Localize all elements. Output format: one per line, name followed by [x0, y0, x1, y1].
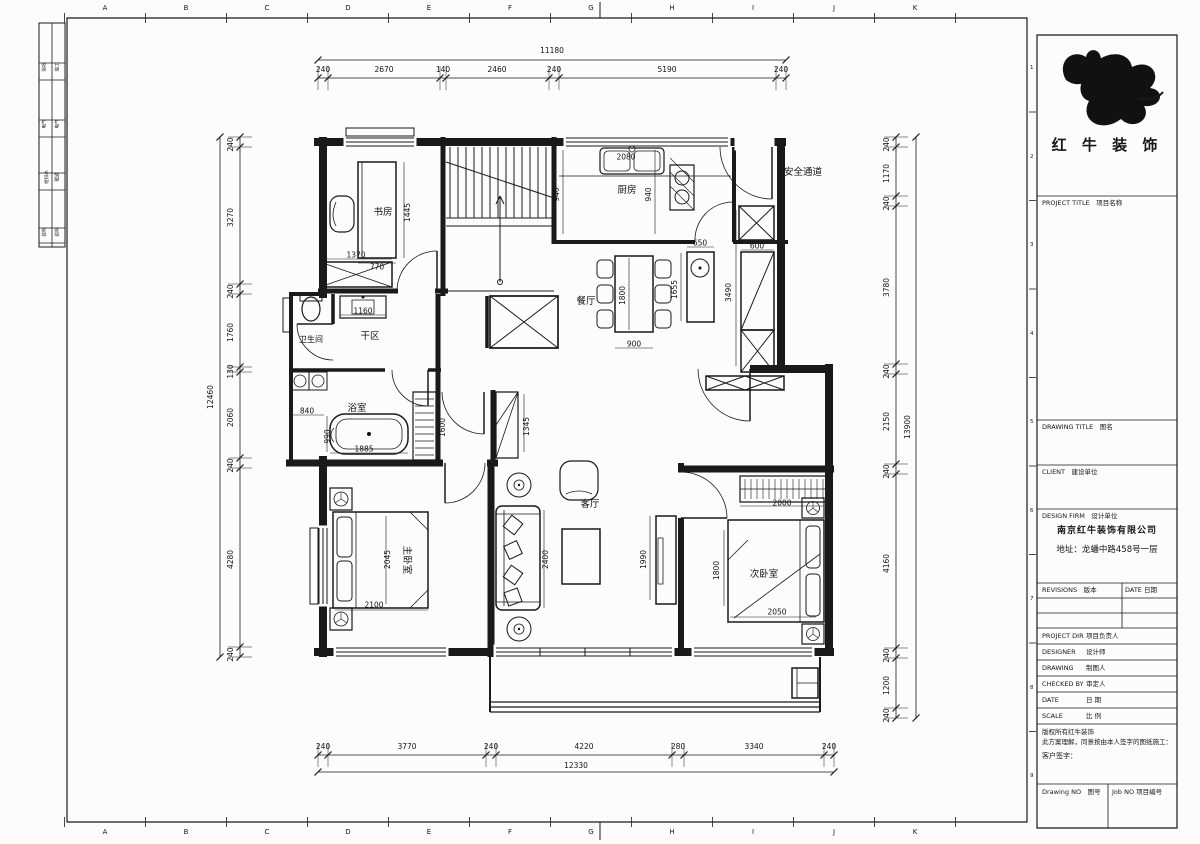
- dim-label: 4160: [882, 554, 891, 573]
- dim-label: 1760: [226, 323, 235, 342]
- grid-letter: I: [743, 828, 763, 836]
- dim-label: 1160: [353, 307, 372, 316]
- fold-strip-label: 结构: [42, 228, 48, 237]
- dim-label: 2060: [226, 408, 235, 427]
- tb-row-en: SCALE: [1042, 713, 1063, 720]
- dim-label: 240: [822, 742, 837, 751]
- dim-total-label: 11180: [540, 46, 564, 55]
- dim-label: 240: [547, 65, 562, 74]
- grid-letter: A: [95, 828, 115, 836]
- grid-letter: B: [176, 4, 196, 12]
- dim-total-label: 13900: [903, 415, 912, 439]
- dim-label: 2150: [882, 412, 891, 431]
- tb-row-zh: 比 例: [1086, 713, 1101, 720]
- dim-label: 4280: [226, 550, 235, 569]
- job-no-label: Job NO 项目编号: [1112, 789, 1162, 796]
- bath-fixtures: [291, 294, 436, 460]
- brand-name: 红 牛 装 饰: [1045, 138, 1169, 153]
- grid-letter: A: [95, 4, 115, 12]
- dim-label: 2100: [364, 601, 383, 610]
- dim-label: 240: [882, 464, 891, 479]
- tb-row-zh: 项目负责人: [1086, 633, 1119, 640]
- dim-label: 2045: [383, 550, 392, 569]
- dim-total-label: 12460: [206, 385, 215, 409]
- dim-label: 1170: [882, 164, 891, 183]
- balcony: [490, 657, 820, 712]
- dim-label: 240: [882, 648, 891, 663]
- grid-letter: B: [176, 828, 196, 836]
- dim-label: 4220: [574, 742, 593, 751]
- grid-letter: F: [500, 828, 520, 836]
- dim-label: 1600: [438, 418, 447, 437]
- project-title-label: PROJECT TITLE 项目名称: [1042, 200, 1122, 207]
- grid-letter: H: [662, 4, 682, 12]
- dim-label: 240: [226, 647, 235, 662]
- dim-label: 280: [671, 742, 686, 751]
- client-label: CLIENT 建设单位: [1042, 469, 1098, 476]
- floor-plan: [283, 128, 834, 712]
- room-label: 主卧室: [401, 546, 413, 575]
- dim-label: 3340: [744, 742, 763, 751]
- grid-number: 9: [1030, 773, 1034, 779]
- dim-label: 1370: [346, 251, 365, 260]
- dim-label: 940: [552, 187, 561, 202]
- grid-number: 7: [1030, 596, 1034, 602]
- date-header-label: DATE 日期: [1125, 587, 1157, 594]
- dim-label: 240: [316, 65, 331, 74]
- dim-label: 240: [882, 364, 891, 379]
- dim-label: 240: [774, 65, 789, 74]
- tb-row-zh: 制图人: [1086, 665, 1106, 672]
- dim-label: 940: [644, 187, 653, 202]
- dim-label: 1655: [670, 280, 679, 299]
- room-label: 次卧室: [750, 568, 779, 580]
- drawing-sheet: { "frame": { "top_letters": ["A","B","C"…: [0, 0, 1200, 844]
- grid-letter: D: [338, 828, 358, 836]
- fold-strip-label: 暖通: [55, 173, 61, 182]
- dim-label: 240: [226, 137, 235, 152]
- grid-letter: J: [824, 828, 844, 836]
- grid-letter: H: [662, 828, 682, 836]
- fold-strip-label: 验收: [42, 63, 48, 72]
- tb-row-zh: 审定人: [1086, 681, 1106, 688]
- room-label: 安全通道: [784, 166, 823, 178]
- fold-strip-label: 结构: [55, 228, 61, 237]
- drawing-title-label: DRAWING TITLE 图名: [1042, 424, 1113, 431]
- rednbull-logo: [1063, 50, 1163, 125]
- copyright-line1: 版权所有红牛装饰: [1042, 729, 1094, 736]
- room-label: 浴室: [347, 402, 366, 414]
- floor-plan-svg: 2402670140246024051902401118024037702404…: [0, 0, 1200, 844]
- company-name: 南京红牛装饰有限公司: [1040, 527, 1174, 536]
- grid-letter: E: [419, 4, 439, 12]
- grid-letter: G: [581, 828, 601, 836]
- dim-label: 2400: [541, 550, 550, 569]
- room-label: 客厅: [580, 498, 600, 510]
- grid-number: 4: [1030, 331, 1034, 337]
- design-firm-label: DESIGN FIRM 设计单位: [1042, 513, 1117, 520]
- dim-label: 240: [882, 196, 891, 211]
- grid-letter: K: [905, 4, 925, 12]
- dim-label: 2050: [767, 608, 786, 617]
- company-address: 地址：龙蟠中路458号一层: [1040, 546, 1174, 555]
- room-label: 书房: [373, 206, 392, 218]
- grid-letter: D: [338, 4, 358, 12]
- tb-row-en: CHECKED BY: [1042, 681, 1084, 688]
- dim-label: 2670: [374, 65, 393, 74]
- tb-row-en: DESIGNER: [1042, 649, 1076, 656]
- grid-number: 1: [1030, 65, 1034, 71]
- dim-label: 240: [226, 458, 235, 473]
- dim-label: 240: [484, 742, 499, 751]
- dim-label: 5190: [657, 65, 676, 74]
- grid-letter: G: [581, 4, 601, 12]
- dim-label: 2080: [616, 153, 635, 162]
- tb-row-en: PROJECT DIR: [1042, 633, 1084, 640]
- tb-row-zh: 日 期: [1086, 697, 1101, 704]
- grid-number: 5: [1030, 419, 1034, 425]
- dim-label: 240: [316, 742, 331, 751]
- tb-row-en: DATE: [1042, 697, 1059, 704]
- dim-label: 1445: [403, 203, 412, 222]
- dim-label: 600: [750, 242, 765, 251]
- study-furniture: [320, 162, 396, 287]
- grid-letter: E: [419, 828, 439, 836]
- room-label: 干区: [360, 331, 380, 342]
- dim-label: 1800: [712, 561, 721, 580]
- fold-strip-label: 电气: [42, 120, 48, 129]
- dining-furniture: [597, 252, 714, 332]
- dim-label: 140: [436, 65, 451, 74]
- dim-label: 1200: [882, 676, 891, 695]
- dim-label: 3270: [226, 208, 235, 227]
- dim-label: 2460: [487, 65, 506, 74]
- dim-label: 990: [323, 429, 332, 444]
- tb-row-en: DRAWING: [1042, 665, 1074, 672]
- room-label: 餐厅: [576, 295, 596, 307]
- grid-number: 2: [1030, 154, 1034, 160]
- dim-label: 650: [693, 239, 708, 248]
- dim-label: 3780: [882, 278, 891, 297]
- fold-strip-label: 电气: [55, 120, 61, 129]
- dim-label: 840: [300, 407, 315, 416]
- dim-label: 240: [882, 708, 891, 723]
- dim-label: 240: [226, 284, 235, 299]
- elevator-shaft: [490, 206, 784, 390]
- grid-letter: J: [824, 4, 844, 12]
- grid-letter: C: [257, 4, 277, 12]
- grid-number: 8: [1030, 685, 1034, 691]
- dim-label: 3490: [724, 283, 733, 302]
- dim-label: 130: [226, 364, 235, 379]
- dim-total-label: 12330: [564, 761, 588, 770]
- fold-strip-label: 给排水: [44, 170, 50, 184]
- dim-label: 900: [627, 340, 642, 349]
- copyright-line2: 此方案理解，同意按由本人签字的图纸施工：: [1042, 739, 1172, 746]
- drawing-no-label: Drawing NO 图号: [1042, 789, 1101, 796]
- customer-signature-label: 客户签字：: [1042, 753, 1077, 760]
- dim-label: 1885: [354, 445, 373, 454]
- grid-letter: K: [905, 828, 925, 836]
- dim-label: 240: [882, 137, 891, 152]
- tb-row-zh: 设计师: [1086, 649, 1106, 656]
- dim-label: 770: [370, 263, 385, 272]
- grid-letter: I: [743, 4, 763, 12]
- plan-labels: 书房厨房餐厅卫生间干区浴室客厅主卧室次卧室安全通道144577013702080…: [299, 153, 822, 617]
- grid-number: 6: [1030, 508, 1034, 514]
- staircase: [446, 147, 554, 291]
- grid-number: 3: [1030, 242, 1034, 248]
- dim-label: 1800: [618, 286, 627, 305]
- grid-letter: F: [500, 4, 520, 12]
- room-label: 厨房: [617, 184, 636, 196]
- grid-letter: C: [257, 828, 277, 836]
- dim-label: 1990: [639, 550, 648, 569]
- fold-strip-label: 竣工: [55, 63, 61, 72]
- revisions-label: REVISIONS 版本: [1042, 587, 1097, 594]
- room-label: 卫生间: [299, 334, 323, 344]
- dim-label: 2000: [772, 499, 791, 508]
- dim-label: 3770: [397, 742, 416, 751]
- dim-label: 1345: [522, 417, 531, 436]
